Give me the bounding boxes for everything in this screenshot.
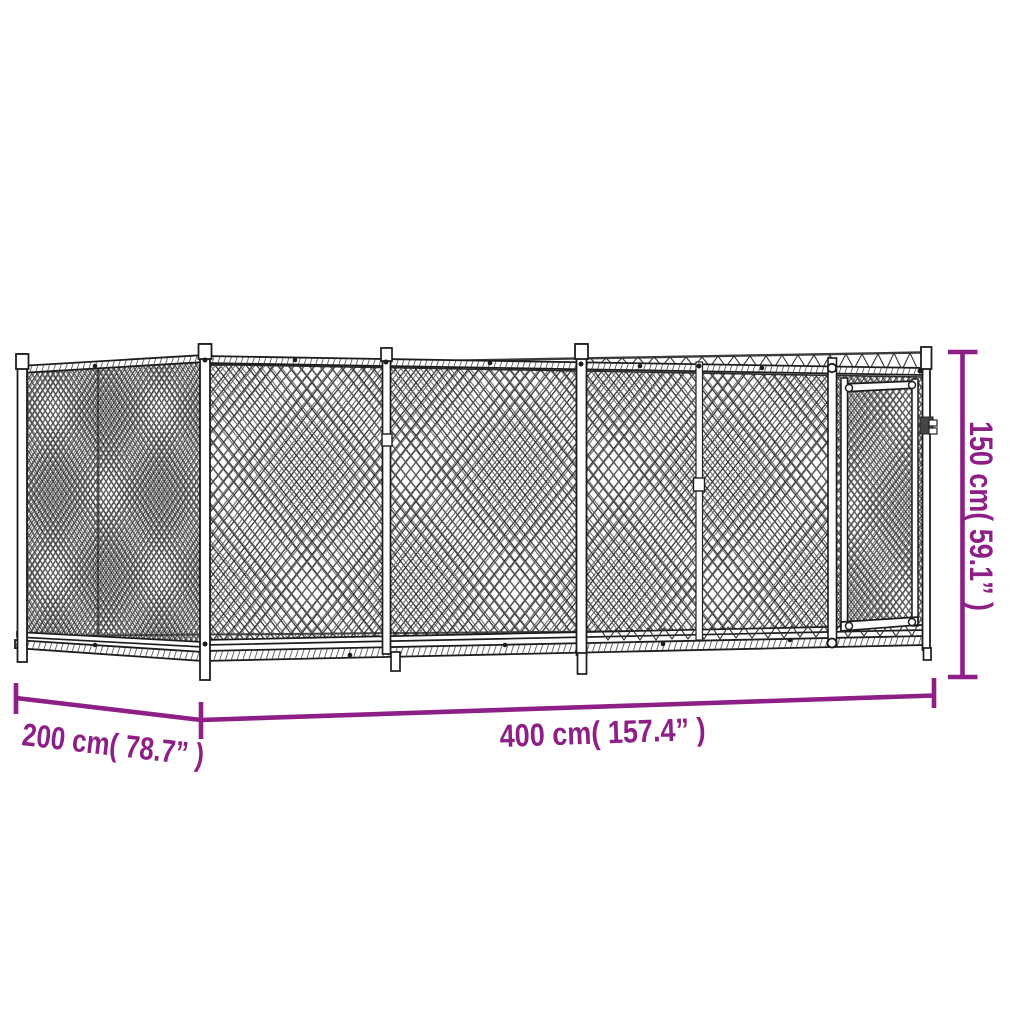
svg-text:150 cm( 59.1” ): 150 cm( 59.1” )	[963, 421, 999, 611]
svg-text:400 cm( 157.4” ): 400 cm( 157.4” )	[499, 711, 706, 754]
